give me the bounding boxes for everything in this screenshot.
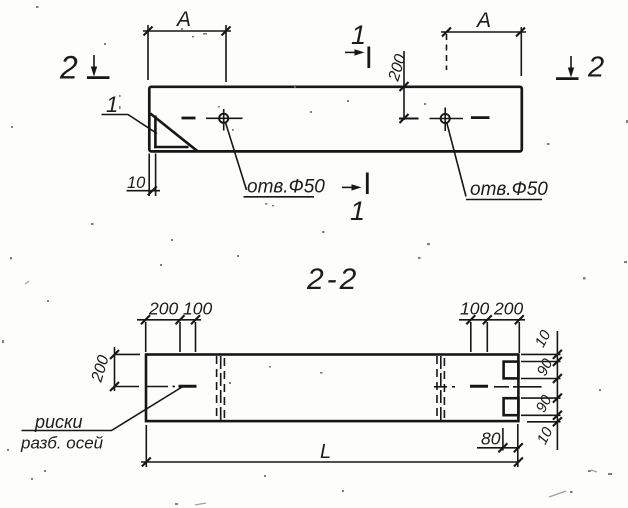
svg-text:L: L — [320, 441, 331, 463]
svg-text:1: 1 — [351, 20, 366, 50]
svg-text:200: 200 — [88, 353, 112, 385]
svg-text:10: 10 — [127, 174, 146, 192]
svg-text:80: 80 — [481, 429, 501, 449]
svg-text:2-2: 2-2 — [306, 263, 359, 296]
svg-text:200 100: 200 100 — [148, 299, 213, 319]
svg-text:200: 200 — [385, 52, 409, 84]
svg-text:1: 1 — [106, 92, 118, 117]
svg-text:А: А — [475, 9, 491, 32]
svg-text:2: 2 — [587, 52, 604, 84]
svg-text:разб. осей: разб. осей — [20, 434, 104, 453]
svg-text:2: 2 — [59, 50, 78, 86]
svg-text:А: А — [175, 8, 191, 31]
svg-text:90: 90 — [533, 392, 556, 415]
svg-text:10: 10 — [532, 327, 555, 350]
svg-text:риски: риски — [34, 412, 83, 432]
svg-text:1: 1 — [350, 196, 365, 226]
svg-text:отв.Ф50: отв.Ф50 — [470, 179, 548, 200]
svg-text:10: 10 — [534, 424, 557, 447]
svg-text:отв.Ф50: отв.Ф50 — [247, 177, 325, 198]
